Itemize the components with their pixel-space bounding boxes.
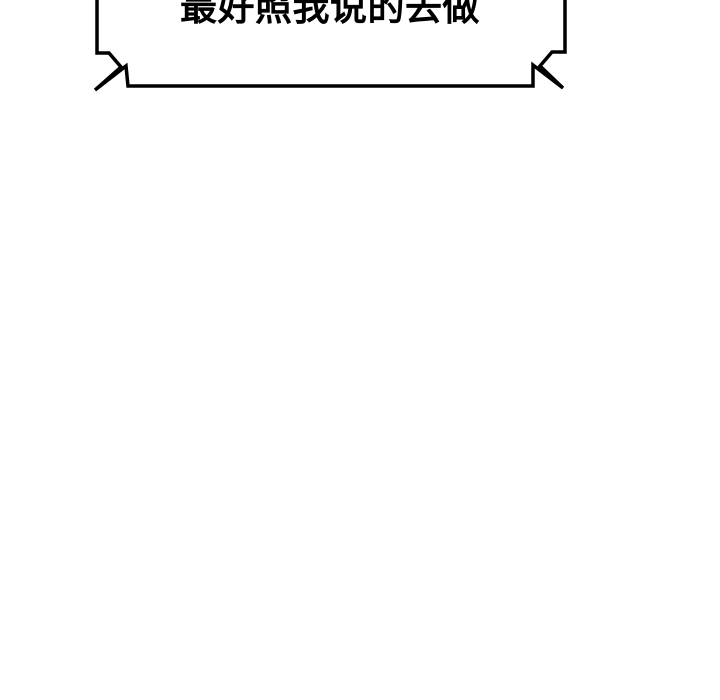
comic-panel: 最好照我说的去做 (0, 0, 720, 700)
comic-panel-canvas: 最好照我说的去做 (0, 0, 720, 700)
speech-bubble-text: 最好照我说的去做 (180, 0, 480, 28)
